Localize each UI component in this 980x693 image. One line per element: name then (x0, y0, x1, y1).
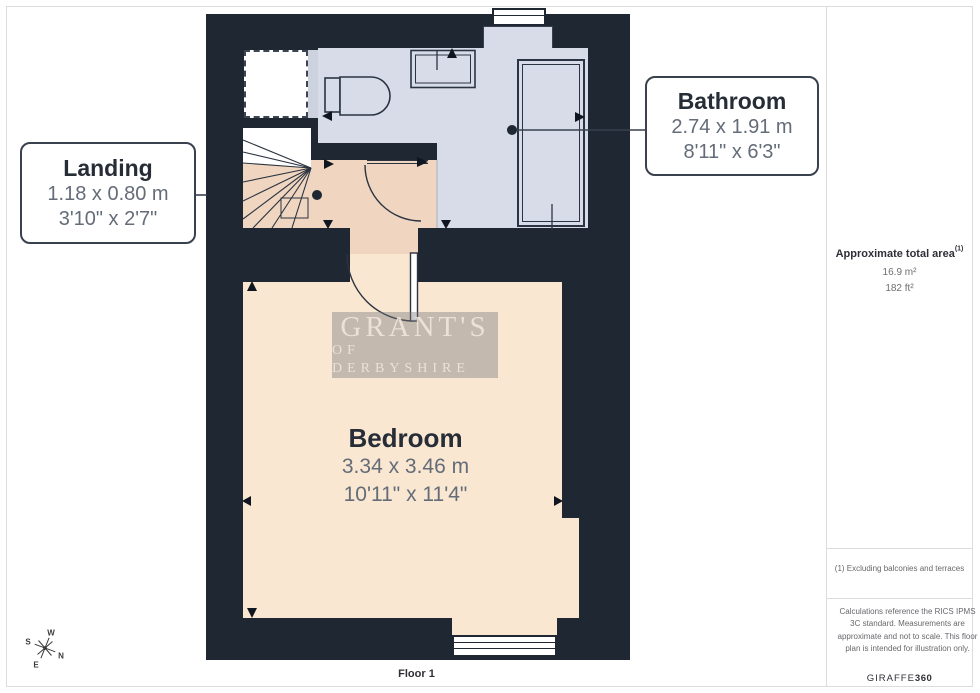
bathroom-metric: 2.74 x 1.91 m (671, 115, 792, 140)
chimney-recess (483, 26, 553, 50)
doorway-passage-lower (350, 254, 418, 282)
brand-name: GIRAFFE (867, 673, 915, 684)
top-window (492, 8, 546, 26)
bottom-window-mullion-1 (454, 642, 555, 643)
total-area-ft2: 182 ft² (826, 283, 973, 294)
footnote-text: (1) Excluding balconies and terraces (826, 564, 973, 573)
bedroom-metric: 3.34 x 3.46 m (278, 453, 533, 481)
compass-west: W (47, 629, 55, 638)
total-area-m2: 16.9 m² (826, 267, 973, 278)
bathroom-label: Bathroom 2.74 x 1.91 m 8'11" x 6'3" (645, 76, 819, 176)
total-area-footnote-marker: (1) (955, 246, 964, 253)
floor-label: Floor 1 (6, 668, 827, 680)
watermark-subtitle: OF DERBYSHIRE (332, 342, 498, 378)
bathroom-imperial: 8'11" x 6'3" (683, 140, 780, 165)
agency-watermark: GRANT'S OF DERBYSHIRE (332, 312, 498, 378)
sidebar-divider-2 (826, 598, 973, 599)
landing-metric: 1.18 x 0.80 m (47, 182, 168, 207)
brand-block: GIRAFFE360 (826, 668, 973, 686)
landing-floor (311, 160, 437, 228)
brand-suffix: 360 (915, 673, 932, 684)
bedroom-label: Bedroom 3.34 x 3.46 m 10'11" x 11'4" (278, 423, 533, 509)
sidebar-divider-1 (826, 548, 973, 549)
compass-south: S (25, 638, 30, 647)
disclaimer-text: Calculations reference the RICS IPMS 3C … (826, 606, 980, 656)
bathroom-name: Bathroom (678, 88, 787, 115)
landing-imperial: 3'10" x 2'7" (59, 207, 158, 232)
bathroom-floor-lower (437, 143, 588, 228)
compass-east: E (33, 661, 38, 670)
giraffe360-logo: GIRAFFE360 (867, 673, 933, 684)
bedroom-name: Bedroom (278, 423, 533, 453)
total-area-block: Approximate total area(1) 16.9 m² 182 ft… (826, 244, 973, 294)
doorway-passage-upper (350, 228, 418, 254)
total-area-heading: Approximate total area (836, 248, 955, 260)
bottom-window (452, 635, 557, 657)
floorplan-page: W S N E GRANT'S OF DERBYSHIRE Bathroom 2… (0, 0, 980, 693)
bedroom-floor-step (562, 518, 579, 618)
bathroom-door-jamb (308, 50, 318, 118)
skylight-dashed-area (244, 50, 308, 118)
bathroom-floor-upper (318, 48, 588, 143)
bedroom-imperial: 10'11" x 11'4" (278, 481, 533, 509)
bottom-window-mullion-2 (454, 648, 555, 649)
top-window-mullion (494, 15, 544, 16)
watermark-name: GRANT'S (340, 312, 489, 342)
compass-north: N (58, 652, 64, 661)
landing-name: Landing (63, 155, 152, 182)
landing-label: Landing 1.18 x 0.80 m 3'10" x 2'7" (20, 142, 196, 244)
bottom-window-reveal (452, 618, 557, 635)
sidebar-content: Approximate total area(1) 16.9 m² 182 ft… (826, 6, 973, 687)
